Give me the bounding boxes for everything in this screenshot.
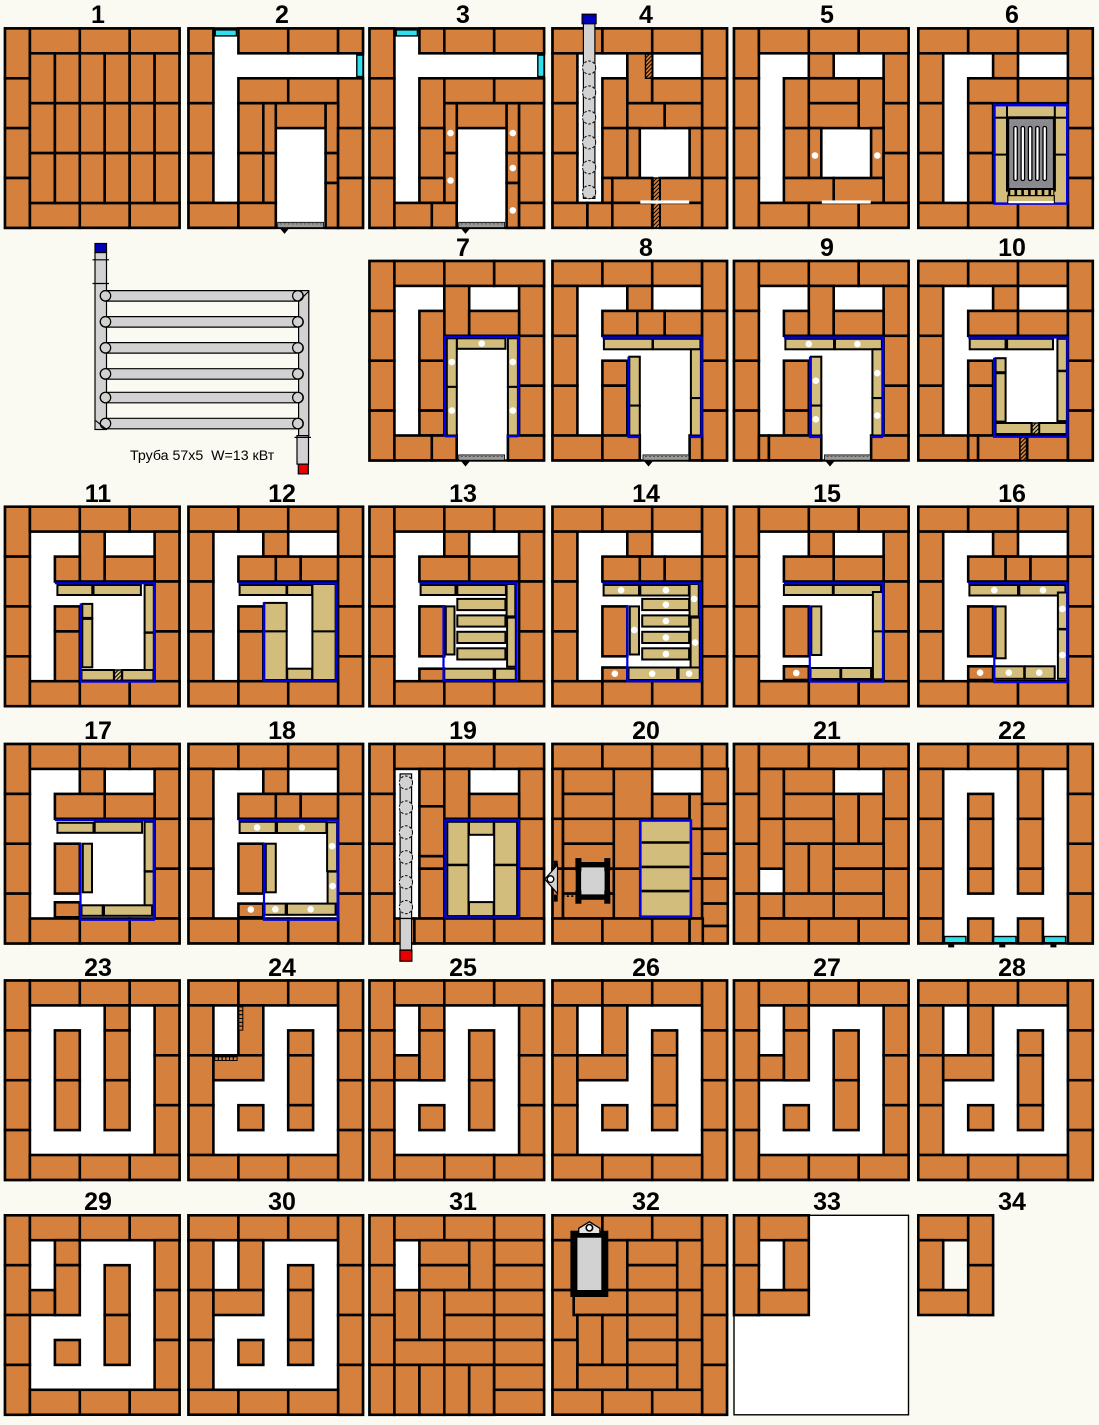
svg-text:26: 26 — [632, 954, 660, 982]
svg-text:3: 3 — [456, 1, 470, 29]
svg-text:Труба 57х5 W=13 кВт: Труба 57х5 W=13 кВт — [130, 448, 275, 464]
svg-text:4: 4 — [639, 1, 653, 29]
svg-text:8: 8 — [639, 234, 653, 262]
svg-text:34: 34 — [998, 1188, 1026, 1216]
svg-text:33: 33 — [813, 1188, 841, 1216]
svg-text:29: 29 — [84, 1188, 112, 1216]
svg-text:10: 10 — [998, 234, 1026, 262]
svg-text:30: 30 — [268, 1188, 296, 1216]
svg-text:14: 14 — [632, 480, 660, 508]
svg-text:5: 5 — [820, 1, 834, 29]
svg-text:20: 20 — [632, 717, 660, 745]
svg-text:17: 17 — [84, 717, 112, 745]
svg-text:18: 18 — [268, 717, 296, 745]
svg-text:12: 12 — [268, 480, 296, 508]
svg-text:16: 16 — [998, 480, 1026, 508]
svg-text:13: 13 — [449, 480, 477, 508]
svg-text:21: 21 — [813, 717, 841, 745]
svg-text:1: 1 — [91, 1, 105, 29]
svg-text:31: 31 — [449, 1188, 477, 1216]
svg-text:6: 6 — [1005, 1, 1019, 29]
svg-text:24: 24 — [268, 954, 296, 982]
svg-text:27: 27 — [813, 954, 841, 982]
svg-text:9: 9 — [820, 234, 834, 262]
svg-text:22: 22 — [998, 717, 1026, 745]
svg-text:15: 15 — [813, 480, 841, 508]
svg-text:28: 28 — [998, 954, 1026, 982]
svg-text:23: 23 — [84, 954, 112, 982]
svg-text:7: 7 — [456, 234, 470, 262]
svg-text:25: 25 — [449, 954, 477, 982]
svg-text:2: 2 — [275, 1, 289, 29]
svg-text:32: 32 — [632, 1188, 660, 1216]
svg-text:11: 11 — [85, 480, 112, 508]
svg-text:19: 19 — [449, 717, 477, 745]
